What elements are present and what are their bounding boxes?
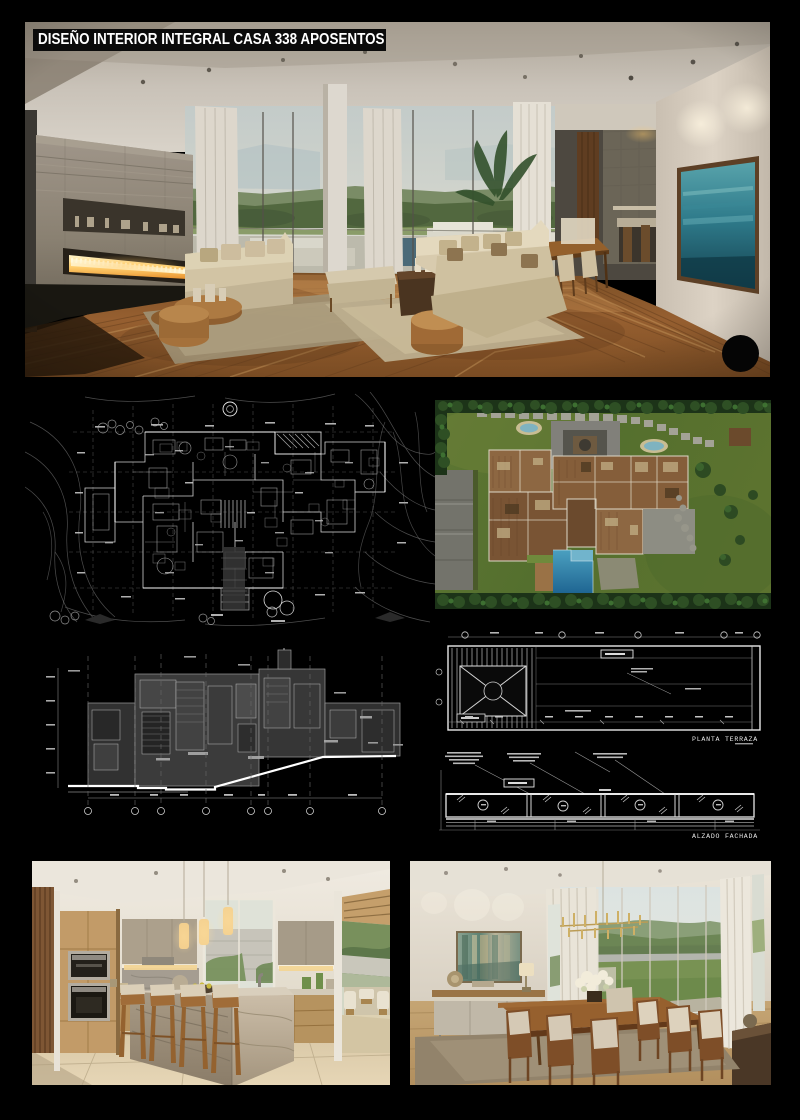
svg-text:ALZADO FACHADA: ALZADO FACHADA — [692, 833, 758, 840]
svg-text:PLANTA TERRAZA: PLANTA TERRAZA — [692, 736, 758, 743]
